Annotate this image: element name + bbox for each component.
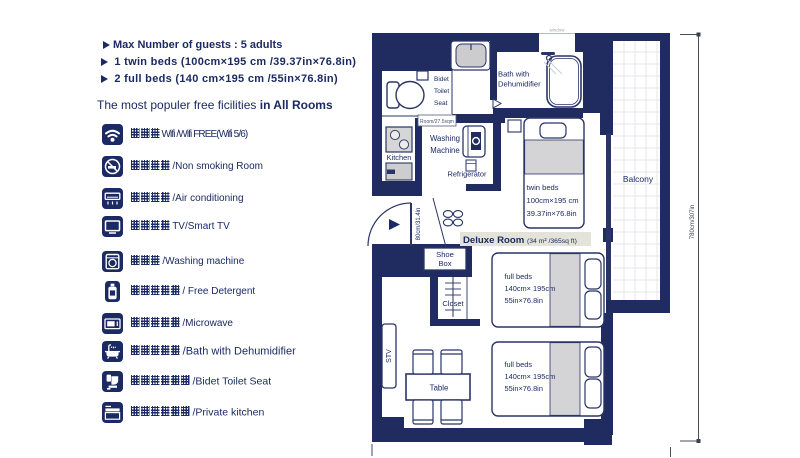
svg-text:window: window — [549, 28, 565, 33]
svg-text:Bath with: Bath with — [498, 70, 529, 79]
svg-text:780cm/307in: 780cm/307in — [690, 205, 696, 239]
svg-text:Dehumidifier: Dehumidifier — [498, 80, 541, 89]
svg-text:twin beds: twin beds — [527, 183, 559, 192]
svg-text:Box: Box — [438, 259, 451, 268]
svg-text:Room/27.5sqm: Room/27.5sqm — [420, 119, 454, 125]
svg-text:Bidet: Bidet — [434, 76, 449, 83]
svg-text:Table: Table — [430, 384, 449, 393]
svg-text:Refrigerator: Refrigerator — [447, 170, 487, 179]
svg-text:Toilet: Toilet — [434, 88, 449, 95]
svg-text:STV: STV — [386, 349, 393, 363]
svg-text:Machine: Machine — [430, 146, 459, 155]
svg-text:Shoe: Shoe — [436, 250, 454, 259]
svg-text:100cm×195 cm: 100cm×195 cm — [527, 196, 579, 205]
svg-text:Washing: Washing — [430, 134, 460, 143]
svg-text:140cm× 195cm: 140cm× 195cm — [505, 372, 556, 381]
svg-text:Balcony: Balcony — [623, 174, 654, 184]
svg-text:Closet: Closet — [442, 299, 464, 308]
svg-text:full beds: full beds — [505, 272, 533, 281]
svg-text:full beds: full beds — [505, 360, 533, 369]
svg-text:Seat: Seat — [434, 100, 448, 107]
svg-text:Kitchen: Kitchen — [387, 153, 412, 162]
svg-text:80cm/31.4in: 80cm/31.4in — [416, 208, 422, 241]
svg-text:140cm× 195cm: 140cm× 195cm — [505, 284, 556, 293]
svg-text:55in×76.8in: 55in×76.8in — [505, 296, 543, 305]
svg-text:39.37in×76.8in: 39.37in×76.8in — [527, 209, 577, 218]
svg-text:55in×76.8in: 55in×76.8in — [505, 384, 543, 393]
